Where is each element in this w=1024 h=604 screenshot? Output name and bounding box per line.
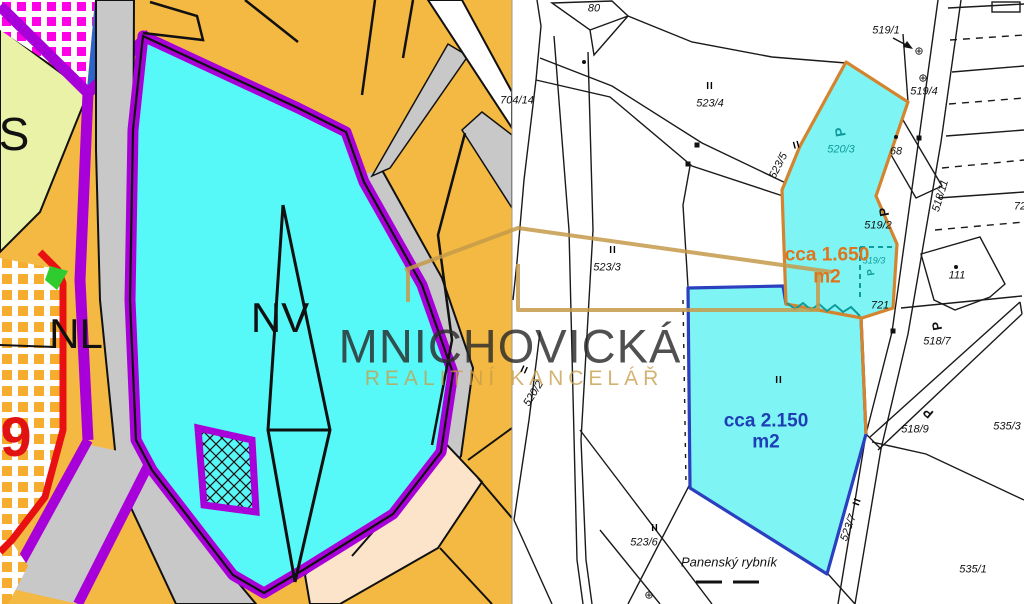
watermark-brand: MNICHOVICKÁ — [339, 319, 682, 374]
watermark: MNICHOVICKÁ REALITNÍ KANCELÁŘ — [0, 0, 1024, 604]
listing-map-composite: MNICHOVICKÁ REALITNÍ KANCELÁŘ SNL9NV8070… — [0, 0, 1024, 604]
watermark-subtitle: REALITNÍ KANCELÁŘ — [365, 367, 664, 391]
